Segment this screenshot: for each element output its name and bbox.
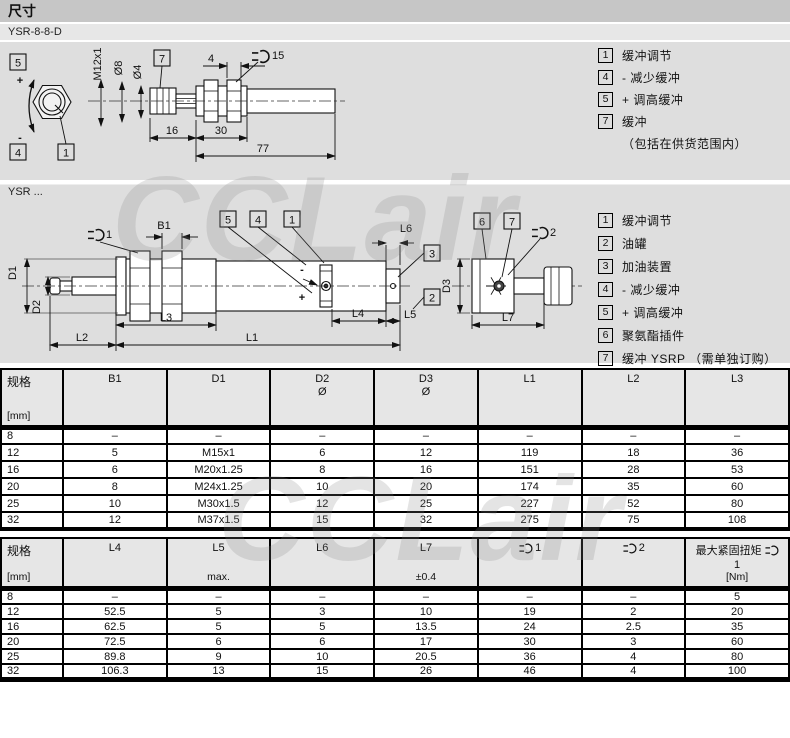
box-label: 1 [289,215,295,227]
col-header-wrench2: 2 [582,538,686,589]
box-label: 4 [255,215,261,227]
legend-text: 缓冲调节 [622,212,672,229]
legend-text: - 减少缓冲 [622,281,680,298]
value-cell: 32 [374,512,478,529]
drawing1-legend: 1缓冲调节 4- 减少缓冲 5+ 调高缓冲 7缓冲 （包括在供货范围内） [598,44,747,154]
legend-number-box: 6 [598,328,613,343]
value-cell: 8 [270,461,374,478]
wrench-icon [622,543,637,554]
page-title: 尺寸 [0,0,790,24]
value-cell: 35 [685,619,789,634]
size-cell: 16 [1,461,63,478]
col-header-d2: D2Ø [270,369,374,427]
value-cell: – [685,427,789,444]
size-cell: 20 [1,634,63,649]
value-cell: 106.3 [63,664,167,680]
value-cell: 2.5 [582,619,686,634]
diameter-dimensions [101,80,141,126]
value-cell: 16 [374,461,478,478]
value-cell: 6 [63,461,167,478]
value-cell: M20x1.25 [167,461,271,478]
value-cell: 4 [582,664,686,680]
col-header-l2: L2 [582,369,686,427]
dimensions-table-1: 规格[mm] B1 D1 D2Ø D3Ø L1 L2 L3 8–––––––12… [0,368,790,531]
diameter-label: Ø4 [132,65,144,80]
col-header-l5: L5max. [167,538,271,589]
legend-text: 缓冲调节 [622,47,672,64]
value-cell: 6 [167,634,271,649]
legend-item: （包括在供货范围内） [598,132,747,154]
legend-text: 缓冲 [622,113,647,130]
value-cell: 80 [685,649,789,664]
value-cell: 5 [167,604,271,619]
drawing2-legend: 1缓冲调节 2油罐 3加油装置 4- 减少缓冲 5+ 调高缓冲 6聚氨酯插件 7… [598,209,777,370]
legend-number-box: 4 [598,70,613,85]
table-row: 3212M37x1.5153227575108 [1,512,789,529]
wrench-icon [764,545,779,556]
drawing2-area: D1 D2 1 B1 5 4 1 - + [0,201,790,363]
size-cell: 12 [1,444,63,461]
value-cell: 52 [582,495,686,512]
table-row: 125M15x16121191836 [1,444,789,461]
value-cell: 6 [270,634,374,649]
box-label: 5 [15,58,21,70]
dim-label: L1 [246,332,258,344]
legend-item: 7缓冲 YSRP （需单独订购） [598,347,777,370]
col-header-wrench1: 1 [478,538,582,589]
legend-text: 加油装置 [622,258,672,275]
value-cell: – [582,427,686,444]
value-cell: 9 [167,649,271,664]
col-header-spec: 规格[mm] [1,369,63,427]
table-row: 2072.5661730360 [1,634,789,649]
value-cell: 30 [478,634,582,649]
value-cell: 151 [478,461,582,478]
value-cell: 80 [685,495,789,512]
minus-label: - [300,264,304,276]
legend-text: 聚氨酯插件 [622,327,685,344]
box-label: 7 [159,54,165,66]
section2-label: YSR ... [0,184,790,201]
value-cell: 275 [478,512,582,529]
value-cell: 35 [582,478,686,495]
value-cell: 5 [63,444,167,461]
product-code-label: YSR-8-8-D [0,24,790,42]
size-cell: 32 [1,512,63,529]
legend-text: 缓冲 YSRP （需单独订购） [622,350,777,367]
dim-value: 4 [208,53,214,65]
value-cell: 36 [685,444,789,461]
value-cell: 100 [685,664,789,680]
length-dimensions [150,114,335,162]
value-cell: 227 [478,495,582,512]
table-row: 1252.5531019220 [1,604,789,619]
value-cell: 119 [478,444,582,461]
box-label: 1 [63,148,69,160]
legend-number-box: 5 [598,305,613,320]
value-cell: 62.5 [63,619,167,634]
col-header-l3: L3 [685,369,789,427]
value-cell: – [374,589,478,605]
box-label: 5 [225,215,231,227]
legend-text: + 调高缓冲 [622,304,683,321]
legend-number-box: 7 [598,351,613,366]
dim-value: 16 [166,125,178,137]
legend-item: 2油罐 [598,232,777,255]
value-cell: – [167,427,271,444]
table-row: 166M20x1.258161512853 [1,461,789,478]
dim-label: L4 [352,308,364,320]
value-cell: 5 [270,619,374,634]
dim-label: D3 [441,279,453,293]
value-cell: 108 [685,512,789,529]
table-row: 8––––––– [1,427,789,444]
col-header-l4: L4 [63,538,167,589]
value-cell: 72.5 [63,634,167,649]
thread-label: M12x1 [92,47,104,80]
dim-label: D2 [31,300,43,314]
size-cell: 25 [1,495,63,512]
value-cell: 24 [478,619,582,634]
table-row: 208M24x1.2510201743560 [1,478,789,495]
value-cell: 3 [270,604,374,619]
value-cell: 18 [582,444,686,461]
dim-label: L6 [400,223,412,235]
legend-item: 4- 减少缓冲 [598,66,747,88]
value-cell: – [478,589,582,605]
value-cell: 60 [685,478,789,495]
legend-text: - 减少缓冲 [622,69,680,86]
dimensions-table-2: 规格[mm] L4 L5max. L6 L7±0.4 1 2 最大紧固扭矩1[N… [0,537,790,682]
legend-number-box: 3 [598,259,613,274]
value-cell: 60 [685,634,789,649]
value-cell: 10 [374,604,478,619]
box-label: 7 [509,217,515,229]
value-cell: 174 [478,478,582,495]
value-cell: 25 [374,495,478,512]
value-cell: 3 [582,634,686,649]
value-cell: 13 [167,664,271,680]
value-cell: 12 [374,444,478,461]
leader-line [100,242,138,253]
value-cell: M30x1.5 [167,495,271,512]
minus-label: - [18,132,22,144]
dim-label: B1 [157,220,170,232]
value-cell: 12 [270,495,374,512]
legend-item: 3加油装置 [598,255,777,278]
legend-number-box: 1 [598,213,613,228]
value-cell: M37x1.5 [167,512,271,529]
legend-text: 油罐 [622,235,647,252]
wrench-icon [88,230,104,241]
wrench-num: 1 [106,229,112,241]
technical-drawing-ysr: D1 D2 1 B1 5 4 1 - + [0,201,586,361]
size-cell: 20 [1,478,63,495]
dim-label: D1 [7,266,19,280]
col-header-torque: 最大紧固扭矩1[Nm] [685,538,789,589]
value-cell: 46 [478,664,582,680]
col-header-l7: L7±0.4 [374,538,478,589]
table-header-row: 规格[mm] B1 D1 D2Ø D3Ø L1 L2 L3 [1,369,789,427]
box-label: 6 [479,217,485,229]
value-cell: 28 [582,461,686,478]
legend-item: 5+ 调高缓冲 [598,301,777,324]
value-cell: – [582,589,686,605]
legend-text: + 调高缓冲 [622,91,683,108]
legend-item: 1缓冲调节 [598,44,747,66]
box-label: 4 [15,148,21,160]
table-row: 1662.55513.5242.535 [1,619,789,634]
value-cell: 10 [63,495,167,512]
value-cell: 8 [63,478,167,495]
dim-label: L5 [404,309,416,321]
value-cell: – [167,589,271,605]
value-cell: 2 [582,604,686,619]
value-cell: 20 [374,478,478,495]
legend-item: 6聚氨酯插件 [598,324,777,347]
wrench-icon [532,228,548,239]
box-label: 2 [429,293,435,305]
value-cell: 89.8 [63,649,167,664]
box-label: 3 [429,249,435,261]
legend-number-box: 4 [598,282,613,297]
size-cell: 8 [1,589,63,605]
wrench-size-value: 15 [272,50,284,62]
value-cell: 20 [685,604,789,619]
value-cell: M15x1 [167,444,271,461]
value-cell: 12 [63,512,167,529]
legend-number-box: 7 [598,114,613,129]
value-cell: 5 [167,619,271,634]
value-cell: – [63,589,167,605]
legend-number-box: 2 [598,236,613,251]
value-cell: 75 [582,512,686,529]
value-cell: 10 [270,478,374,495]
technical-drawing-ysr-8-8-d: 5 + - 4 1 M12x1 [0,42,560,180]
value-cell: – [63,427,167,444]
legend-item: 7缓冲 [598,110,747,132]
dim-value: 30 [215,125,227,137]
value-cell: 6 [270,444,374,461]
legend-text: （包括在供货范围内） [622,135,747,152]
plus-label: + [17,75,23,87]
legend-item: 4- 减少缓冲 [598,278,777,301]
value-cell: 17 [374,634,478,649]
value-cell: 15 [270,512,374,529]
size-cell: 32 [1,664,63,680]
value-cell: 26 [374,664,478,680]
wrench-icon [518,543,533,554]
size-cell: 25 [1,649,63,664]
ysrp-bumper [472,259,572,313]
value-cell: 53 [685,461,789,478]
value-cell: M24x1.25 [167,478,271,495]
dim-label: L2 [76,332,88,344]
value-cell: – [270,589,374,605]
diameter-label: Ø8 [113,61,125,76]
table-row: 8––––––5 [1,589,789,605]
col-header-b1: B1 [63,369,167,427]
legend-number-box: 5 [598,92,613,107]
plus-label: + [299,292,305,304]
value-cell: – [374,427,478,444]
legend-item: 5+ 调高缓冲 [598,88,747,110]
table-row: 2589.891020.536480 [1,649,789,664]
wrench-icon [252,51,269,63]
value-cell: 15 [270,664,374,680]
value-cell: – [270,427,374,444]
value-cell: 13.5 [374,619,478,634]
table-row: 32106.3131526464100 [1,664,789,680]
value-cell: 4 [582,649,686,664]
value-cell: 19 [478,604,582,619]
b1-dimension [146,233,198,249]
size-cell: 12 [1,604,63,619]
value-cell: 52.5 [63,604,167,619]
value-cell: 5 [685,589,789,605]
value-cell: 20.5 [374,649,478,664]
value-cell: 10 [270,649,374,664]
size-cell: 16 [1,619,63,634]
dim-label: L3 [160,312,172,324]
hex-front-view [10,54,74,160]
table-header-row: 规格[mm] L4 L5max. L6 L7±0.4 1 2 最大紧固扭矩1[N… [1,538,789,589]
legend-number-box: 1 [598,48,613,63]
value-cell: – [478,427,582,444]
col-header-d3: D3Ø [374,369,478,427]
col-header-d1: D1 [167,369,271,427]
col-header-l6: L6 [270,538,374,589]
drawing1-area: 5 + - 4 1 M12x1 [0,42,790,180]
col-header-spec: 规格[mm] [1,538,63,589]
size-cell: 8 [1,427,63,444]
dim-label: L7 [502,312,514,324]
wrench-num: 2 [550,227,556,239]
legend-item: 1缓冲调节 [598,209,777,232]
col-header-l1: L1 [478,369,582,427]
dim-value: 77 [257,143,269,155]
table-row: 2510M30x1.512252275280 [1,495,789,512]
value-cell: 36 [478,649,582,664]
leader-line [236,62,258,82]
